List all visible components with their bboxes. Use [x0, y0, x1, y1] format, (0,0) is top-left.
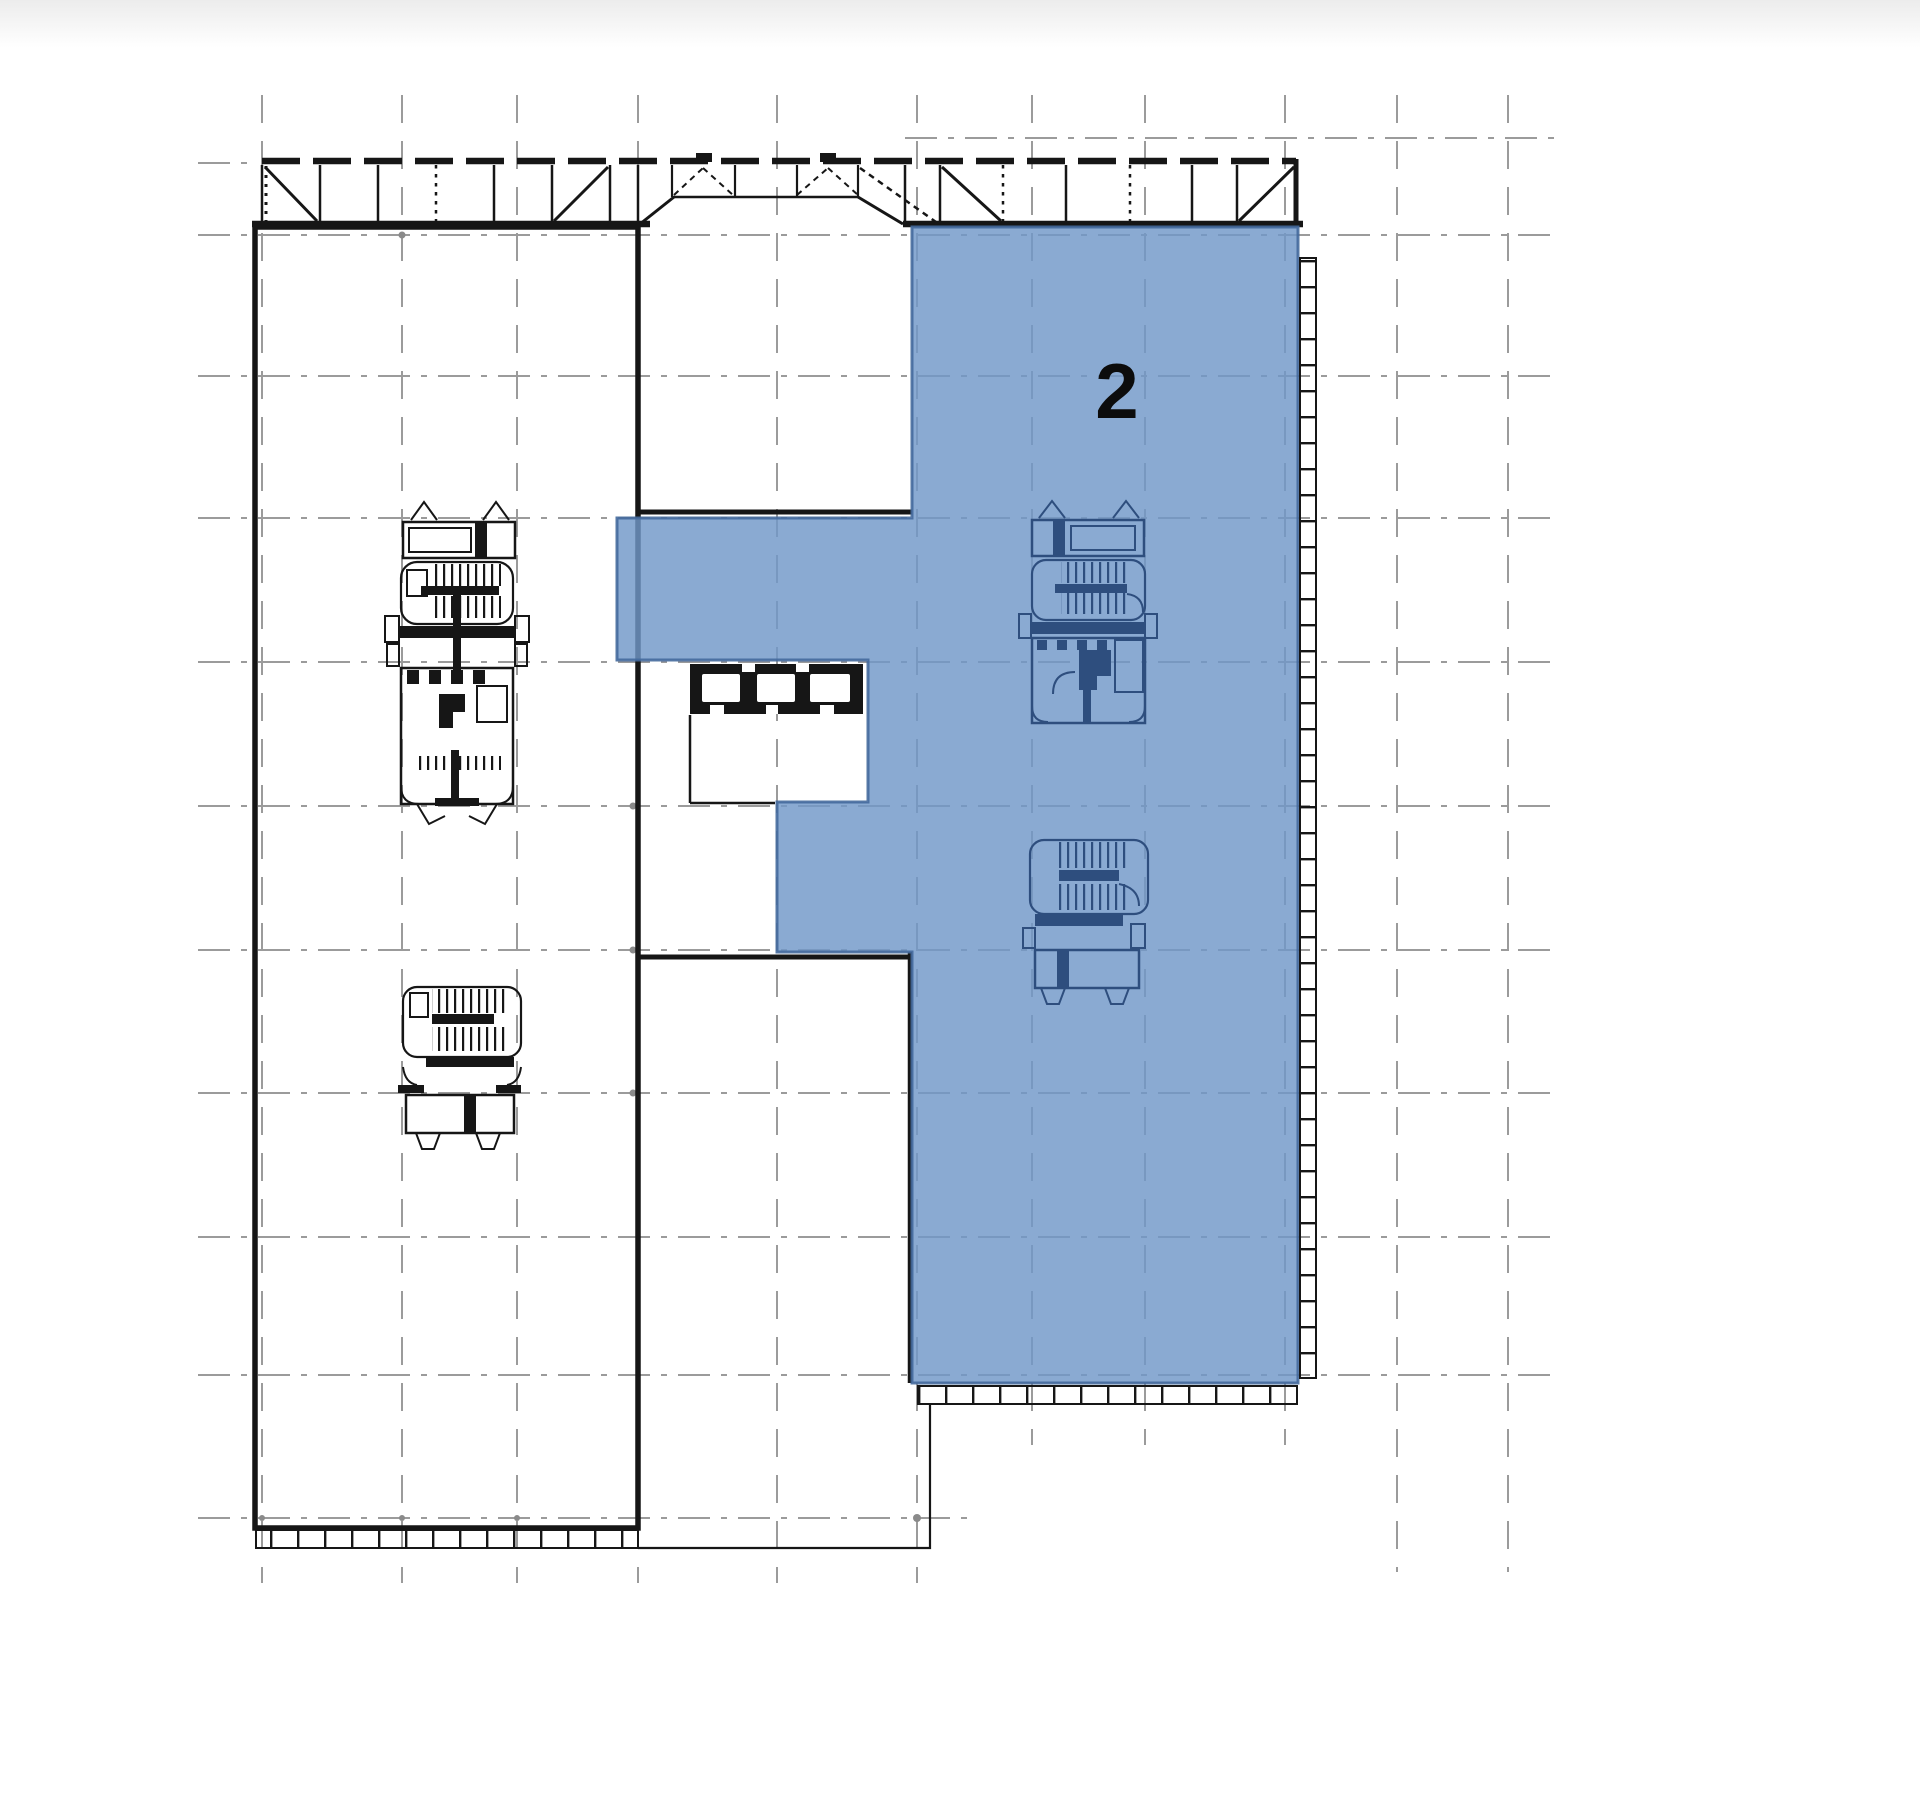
zone-label: 2	[1095, 347, 1138, 435]
wing-bottom-hatch	[256, 1530, 638, 1548]
stair-core-bottom-left	[398, 987, 521, 1149]
truss-diagonal	[265, 167, 317, 221]
elevator-core-center	[690, 664, 863, 714]
zone-2-overlay[interactable]	[617, 227, 1298, 1383]
truss-diagonal	[942, 167, 1001, 221]
floorplan-canvas: 2	[0, 0, 1920, 1794]
lower-floor-step-outline	[638, 1404, 930, 1548]
right-edge-hatch	[1300, 258, 1316, 1378]
zone-bottom-hatch	[918, 1386, 1297, 1404]
floorplan-drawing: 2	[0, 0, 1920, 1794]
left-wing	[255, 227, 638, 1528]
truss-diagonal	[554, 167, 608, 221]
